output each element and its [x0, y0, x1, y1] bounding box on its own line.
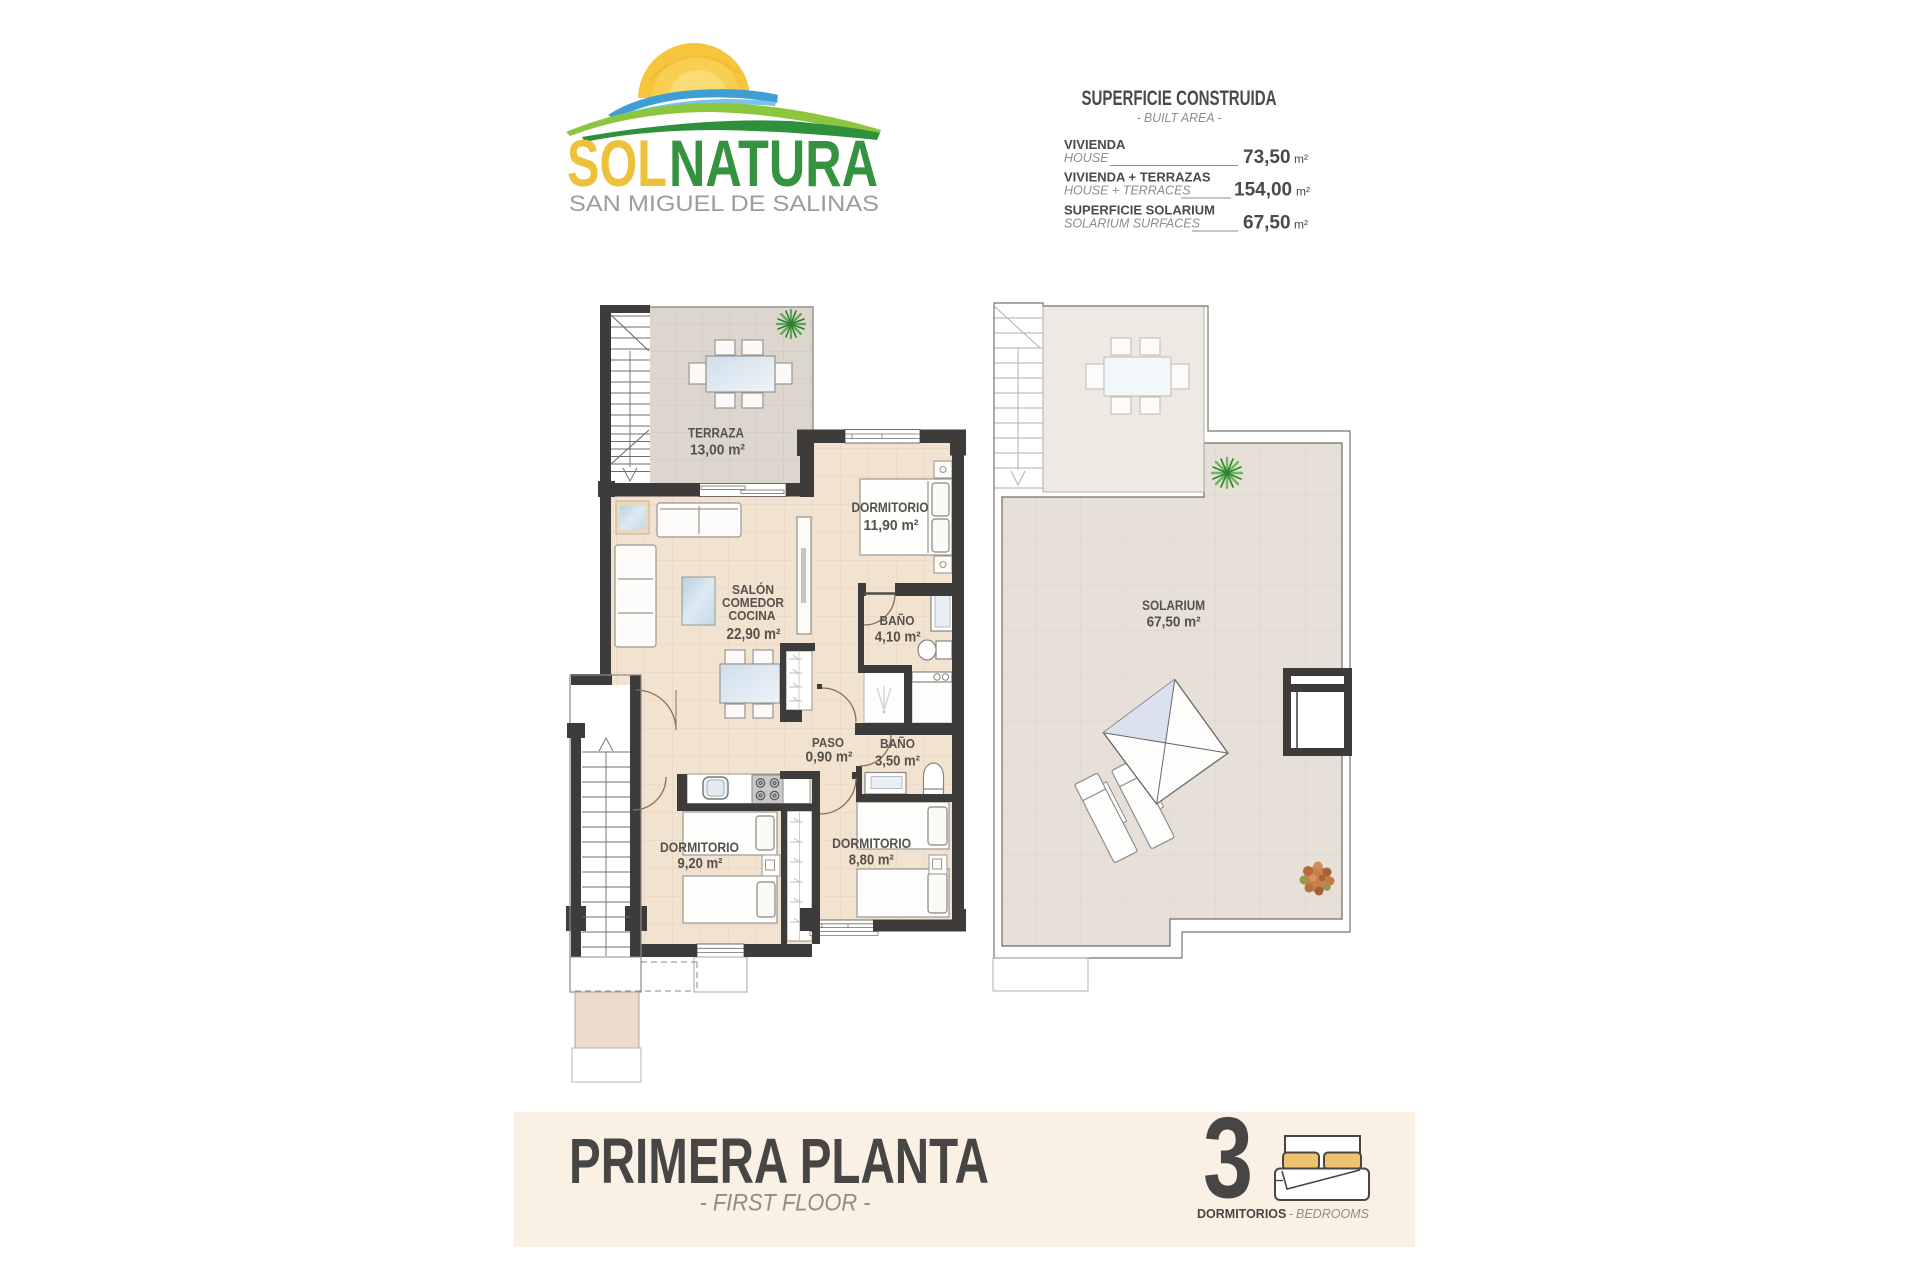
svg-text:DORMITORIO: DORMITORIO — [660, 840, 739, 855]
svg-text:13,00 m²: 13,00 m² — [690, 442, 745, 459]
svg-text:DORMITORIOS: DORMITORIOS — [1197, 1207, 1286, 1221]
svg-text:11,90 m²: 11,90 m² — [864, 517, 919, 534]
svg-text:DORMITORIO: DORMITORIO — [852, 500, 929, 515]
svg-text:8,80 m²: 8,80 m² — [849, 853, 894, 869]
svg-text:HOUSE + TERRACES: HOUSE + TERRACES — [1064, 184, 1191, 198]
svg-text:PASO: PASO — [812, 735, 844, 750]
svg-text:BAÑO: BAÑO — [880, 736, 915, 751]
svg-text:0,90 m²: 0,90 m² — [806, 750, 853, 766]
svg-text:9,20 m²: 9,20 m² — [678, 856, 723, 872]
svg-text:BEDROOMS: BEDROOMS — [1296, 1207, 1370, 1221]
svg-text:3,50 m²: 3,50 m² — [875, 754, 920, 770]
svg-text:SOLARIUM: SOLARIUM — [1142, 598, 1205, 613]
svg-text:VIVIENDA + TERRAZAS: VIVIENDA + TERRAZAS — [1064, 170, 1211, 185]
svg-text:HOUSE: HOUSE — [1064, 151, 1109, 165]
svg-text:67,50 m²: 67,50 m² — [1147, 615, 1201, 631]
svg-text:m²: m² — [1294, 218, 1308, 232]
svg-text:NATURA: NATURA — [669, 126, 878, 200]
svg-text:SALÓN: SALÓN — [732, 582, 774, 597]
svg-text:SOL: SOL — [567, 126, 667, 200]
svg-text:SUPERFICIE CONSTRUIDA: SUPERFICIE CONSTRUIDA — [1082, 87, 1277, 110]
svg-text:22,90 m²: 22,90 m² — [727, 626, 781, 643]
svg-text:73,50: 73,50 — [1243, 147, 1291, 168]
svg-text:COMEDOR: COMEDOR — [722, 596, 784, 610]
svg-text:154,00: 154,00 — [1234, 180, 1292, 201]
svg-text:TERRAZA: TERRAZA — [688, 426, 744, 441]
svg-text:m²: m² — [1296, 185, 1310, 199]
svg-text:67,50: 67,50 — [1243, 213, 1291, 234]
svg-text:SUPERFICIE SOLARIUM: SUPERFICIE SOLARIUM — [1064, 203, 1215, 218]
svg-text:m²: m² — [1294, 152, 1308, 166]
svg-text:- BUILT AREA -: - BUILT AREA - — [1137, 110, 1223, 125]
svg-text:-: - — [1289, 1207, 1293, 1221]
svg-text:SOLARIUM SURFACES: SOLARIUM SURFACES — [1064, 217, 1201, 231]
svg-text:PRIMERA PLANTA: PRIMERA PLANTA — [569, 1125, 989, 1197]
svg-text:SAN MIGUEL DE SALINAS: SAN MIGUEL DE SALINAS — [569, 191, 879, 216]
svg-text:VIVIENDA: VIVIENDA — [1064, 137, 1126, 152]
svg-text:BAÑO: BAÑO — [880, 613, 915, 628]
svg-text:COCINA: COCINA — [729, 609, 776, 623]
svg-text:DORMITORIO: DORMITORIO — [832, 836, 911, 851]
svg-text:3: 3 — [1203, 1094, 1253, 1222]
svg-text:4,10 m²: 4,10 m² — [875, 630, 921, 646]
svg-text:- FIRST FLOOR -: - FIRST FLOOR - — [700, 1190, 871, 1217]
